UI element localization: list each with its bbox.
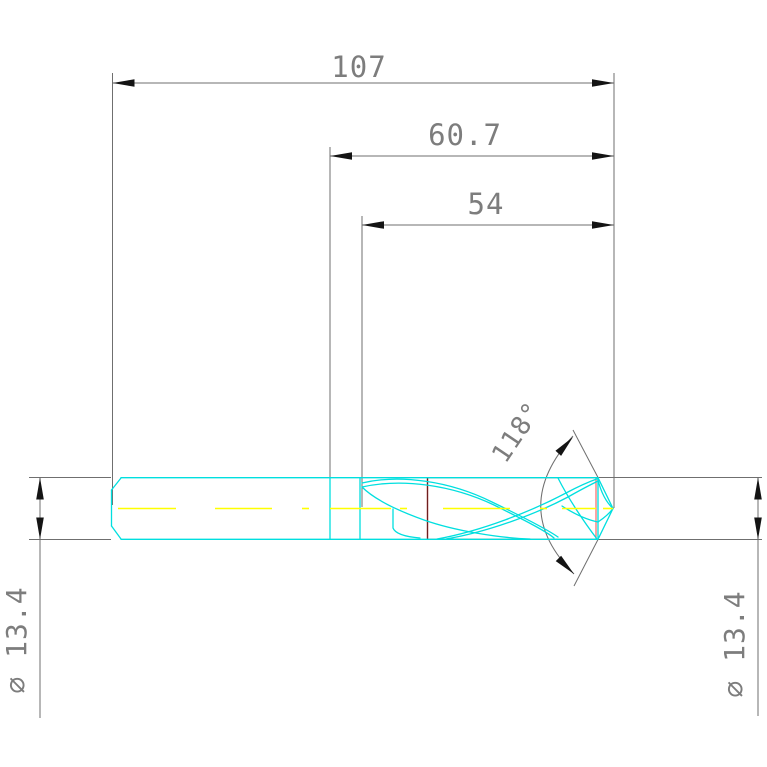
arrow-dia-left-down — [36, 518, 44, 540]
angle-side-bottom — [574, 540, 598, 587]
arrow-107-left — [113, 79, 135, 87]
label-cutting-length: 54 — [468, 187, 505, 221]
arrow-dia-left-up — [36, 478, 44, 500]
arrow-607-right — [592, 152, 614, 160]
arrow-54-right — [592, 221, 614, 229]
drawing-canvas: 107 60.7 54 118° ∅ 13.4 ∅ 13.4 — [0, 0, 767, 767]
label-overall-length: 107 — [331, 50, 386, 84]
arrow-54-left — [362, 221, 384, 229]
technical-drawing: 107 60.7 54 118° ∅ 13.4 ∅ 13.4 — [0, 0, 767, 767]
arrow-dia-right-up — [754, 478, 762, 500]
label-diameter-right: ∅ 13.4 — [718, 590, 751, 697]
label-diameter-left: ∅ 13.4 — [0, 586, 33, 693]
arrow-angle-bottom — [556, 556, 577, 577]
tip-edge-bottom — [598, 509, 613, 540]
angle-side-top — [573, 430, 598, 478]
drill-chamfer-bottom — [112, 526, 122, 539]
flute-helix-2b — [446, 481, 598, 539]
arrow-107-right — [592, 79, 614, 87]
arrow-dia-right-down — [754, 518, 762, 540]
tip-edge-top — [598, 478, 613, 509]
label-point-angle: 118° — [486, 397, 548, 469]
arrow-angle-top — [555, 434, 575, 455]
arrow-607-left — [330, 152, 352, 160]
dimension-lines — [29, 73, 762, 718]
label-flute-length: 60.7 — [428, 118, 502, 152]
angle-arc — [541, 436, 574, 574]
arrowheads — [36, 79, 762, 576]
flute-helix-1c — [362, 487, 530, 539]
tip-chisel-curve-2 — [598, 509, 613, 523]
